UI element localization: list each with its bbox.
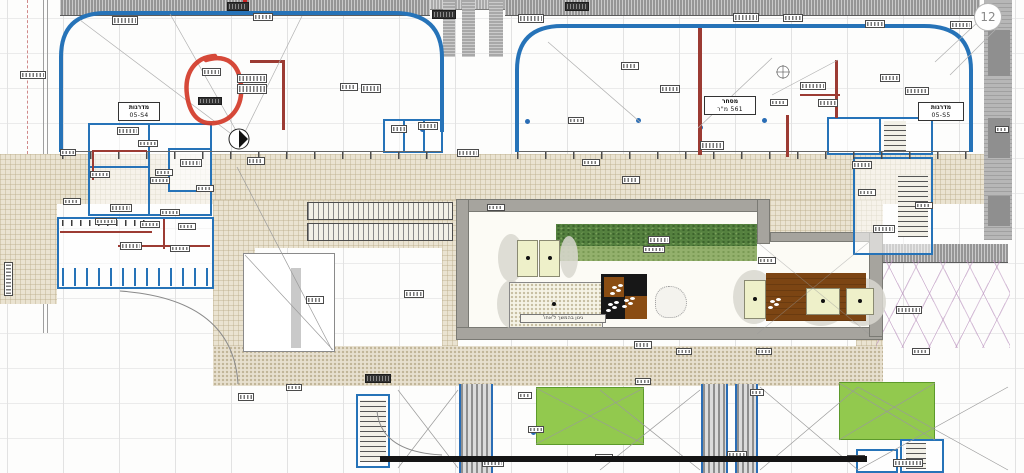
micro-label xyxy=(565,2,589,11)
micro-label xyxy=(896,306,922,314)
micro-label xyxy=(120,242,142,250)
micro-label xyxy=(247,157,265,165)
micro-label xyxy=(915,202,933,209)
micro-label xyxy=(253,13,273,21)
micro-label xyxy=(365,374,391,383)
micro-label xyxy=(361,84,381,93)
micro-label xyxy=(418,122,438,130)
micro-label xyxy=(340,83,358,91)
micro-label xyxy=(880,74,900,82)
micro-label xyxy=(117,127,139,135)
micro-label xyxy=(568,117,584,124)
micro-label xyxy=(950,21,972,29)
micro-label xyxy=(238,393,254,401)
floorplan-canvas: מדרגות 05-S4 מדרגות 05-S5 מסחר 561 מ"ר ג… xyxy=(0,0,1024,473)
micro-label xyxy=(518,14,544,23)
retail-area-label: מסחר 561 מ"ר xyxy=(704,96,756,115)
micro-label xyxy=(818,99,838,107)
stairs-right-title: מדרגות xyxy=(931,104,951,111)
plan-linework xyxy=(0,0,1024,473)
stairs-left-label: מדרגות 05-S4 xyxy=(118,102,160,121)
red-marker-circle xyxy=(187,56,242,123)
micro-label xyxy=(150,177,170,184)
micro-label xyxy=(700,141,724,150)
micro-label xyxy=(622,176,640,184)
micro-label xyxy=(237,74,267,83)
micro-label xyxy=(178,223,196,230)
micro-label xyxy=(660,85,680,93)
micro-label xyxy=(95,218,117,225)
micro-label xyxy=(750,389,764,396)
micro-label xyxy=(905,87,929,95)
micro-label xyxy=(783,14,803,22)
micro-label xyxy=(893,459,923,467)
micro-label xyxy=(487,204,505,211)
grid-bubble-small xyxy=(776,65,790,79)
micro-label xyxy=(676,348,692,355)
micro-label xyxy=(202,68,221,76)
micro-label xyxy=(227,2,249,11)
micro-label xyxy=(852,161,872,169)
micro-label xyxy=(170,245,190,252)
stairs-right-label: מדרגות 05-S5 xyxy=(918,102,964,121)
micro-label xyxy=(770,99,788,106)
micro-label xyxy=(138,140,158,147)
micro-label xyxy=(995,126,1009,133)
micro-label xyxy=(180,159,202,167)
micro-label xyxy=(635,378,651,385)
stairs-right-code: 05-S5 xyxy=(921,112,961,120)
micro-label xyxy=(140,221,160,228)
micro-label xyxy=(60,149,76,156)
micro-label xyxy=(155,169,173,176)
curb-arcs xyxy=(120,291,442,455)
micro-label xyxy=(404,290,424,298)
micro-label xyxy=(582,159,600,166)
micro-label xyxy=(518,392,532,399)
micro-label xyxy=(634,341,652,349)
courtyard-caption: גינון בהמשך ל'אחו' xyxy=(520,314,606,323)
micro-label xyxy=(758,257,776,264)
micro-label xyxy=(432,10,456,19)
retail-area-value: 561 מ"ר xyxy=(707,106,753,114)
micro-label xyxy=(198,97,222,105)
micro-label xyxy=(286,384,302,391)
micro-label xyxy=(643,246,665,253)
micro-label xyxy=(20,71,46,79)
micro-label xyxy=(648,236,670,244)
micro-label xyxy=(733,13,759,22)
micro-label xyxy=(528,426,544,433)
micro-label xyxy=(90,171,110,178)
micro-label xyxy=(237,84,267,94)
micro-label xyxy=(391,125,407,133)
micro-label xyxy=(196,185,214,192)
micro-label xyxy=(160,209,180,216)
building-outline-blue xyxy=(61,13,971,152)
stairs-left-title: מדרגות xyxy=(129,104,149,111)
section-cut-bar xyxy=(380,456,867,462)
micro-label xyxy=(110,204,132,212)
section-marker xyxy=(229,129,249,149)
micro-label xyxy=(621,62,639,70)
retail-title: מסחר xyxy=(722,98,738,105)
micro-label xyxy=(63,198,81,205)
micro-label xyxy=(4,262,13,296)
micro-label xyxy=(865,20,885,28)
micro-label xyxy=(912,348,930,355)
panel-diagonals xyxy=(237,167,1008,470)
micro-label xyxy=(873,225,895,233)
micro-label xyxy=(800,82,826,90)
micro-label xyxy=(306,296,324,304)
grid-bubble-12: 12 xyxy=(974,3,1002,31)
micro-label xyxy=(112,16,138,25)
micro-label xyxy=(756,348,772,355)
micro-label xyxy=(858,189,876,196)
stairs-left-code: 05-S4 xyxy=(121,112,157,120)
micro-label xyxy=(457,149,479,157)
